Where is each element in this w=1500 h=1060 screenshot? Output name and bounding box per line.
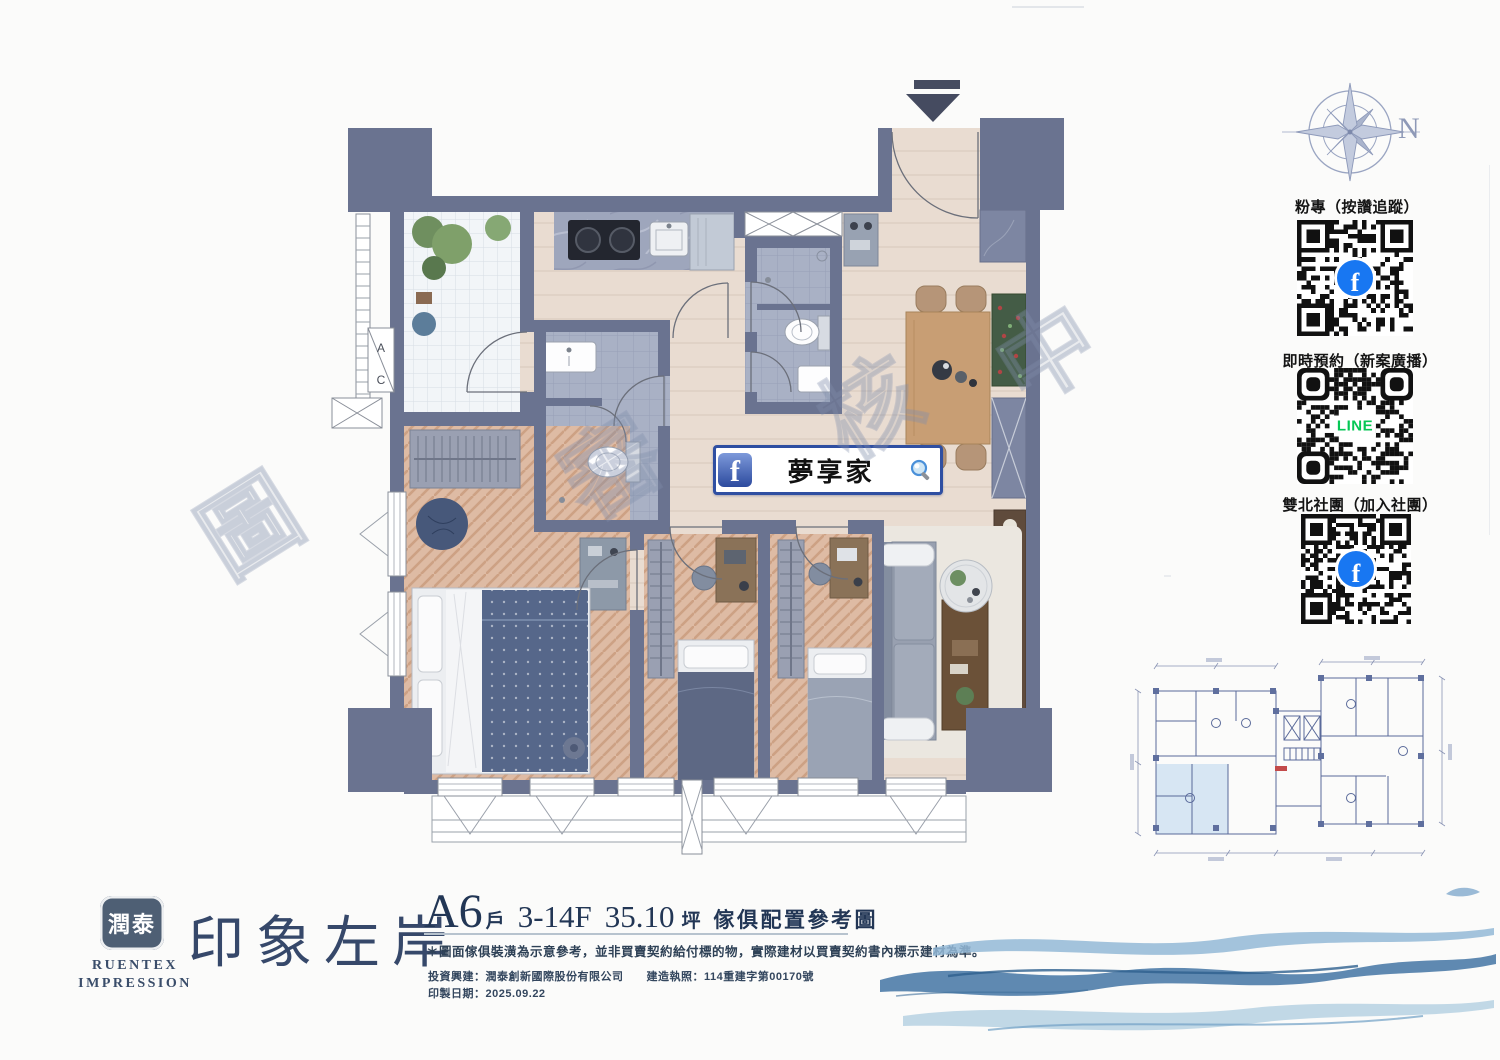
scan-artifact	[1164, 575, 1171, 577]
line-booking-qr-code: LINE	[1297, 368, 1413, 484]
magnifier-icon	[908, 457, 934, 483]
north-label: N	[1398, 112, 1420, 146]
community-group-qr-code: f	[1301, 514, 1411, 624]
title-underline	[424, 933, 848, 935]
wave-decoration	[878, 884, 1500, 1060]
scan-artifact	[1489, 165, 1490, 535]
logo-name-impression: IMPRESSION	[70, 976, 200, 992]
unit-title-row: A6 戶 3-14F 35.10 坪 傢俱配置參考圖	[424, 884, 878, 939]
logo-name-ruentex: RUENTEX	[70, 958, 200, 974]
floor-plan: A C	[330, 80, 1090, 860]
unit-area-unit: 坪	[682, 906, 701, 933]
facebook-icon: f	[718, 453, 752, 487]
banner-text: 夢享家	[754, 452, 908, 489]
facebook-search-banner: f 夢享家	[713, 445, 943, 495]
line-icon: LINE	[1334, 416, 1376, 437]
unit-caption: 傢俱配置參考圖	[714, 904, 879, 934]
watermark-char: 圖	[168, 435, 323, 604]
unit-area: 35.10	[605, 899, 675, 935]
ac-label-top: A	[377, 341, 385, 355]
qr-label-facebook-page: 粉專（按讚追蹤）	[1277, 196, 1437, 217]
dining-area	[906, 286, 990, 470]
project-name: 印象左岸	[188, 898, 460, 979]
qr-label-community-group: 雙北社團（加入社團）	[1274, 494, 1446, 515]
footer-print-date: 印製日期：2025.09.22	[428, 985, 546, 1001]
facebook-icon: f	[1335, 548, 1377, 590]
scan-artifact	[1012, 6, 1084, 8]
unit-suffix: 戶	[486, 906, 505, 933]
facebook-page-qr-code: f	[1297, 220, 1413, 336]
building-key-plan	[1126, 656, 1456, 864]
footer-builder-license: 投資興建：潤泰創新國際股份有限公司 建造執照：114重建字第00170號	[428, 968, 814, 984]
ruentex-logo-badge: 潤泰	[100, 896, 164, 950]
ac-label-bottom: C	[377, 373, 386, 387]
facebook-icon: f	[1334, 257, 1376, 299]
unit-floors: 3-14F	[518, 899, 592, 935]
unit-number: A6	[424, 884, 483, 939]
logo-badge-text: 潤泰	[108, 907, 156, 939]
keyplan-red-mark	[1275, 766, 1287, 771]
entrance-arrow-icon	[906, 80, 960, 122]
floorplan-page: A C	[0, 0, 1500, 1060]
